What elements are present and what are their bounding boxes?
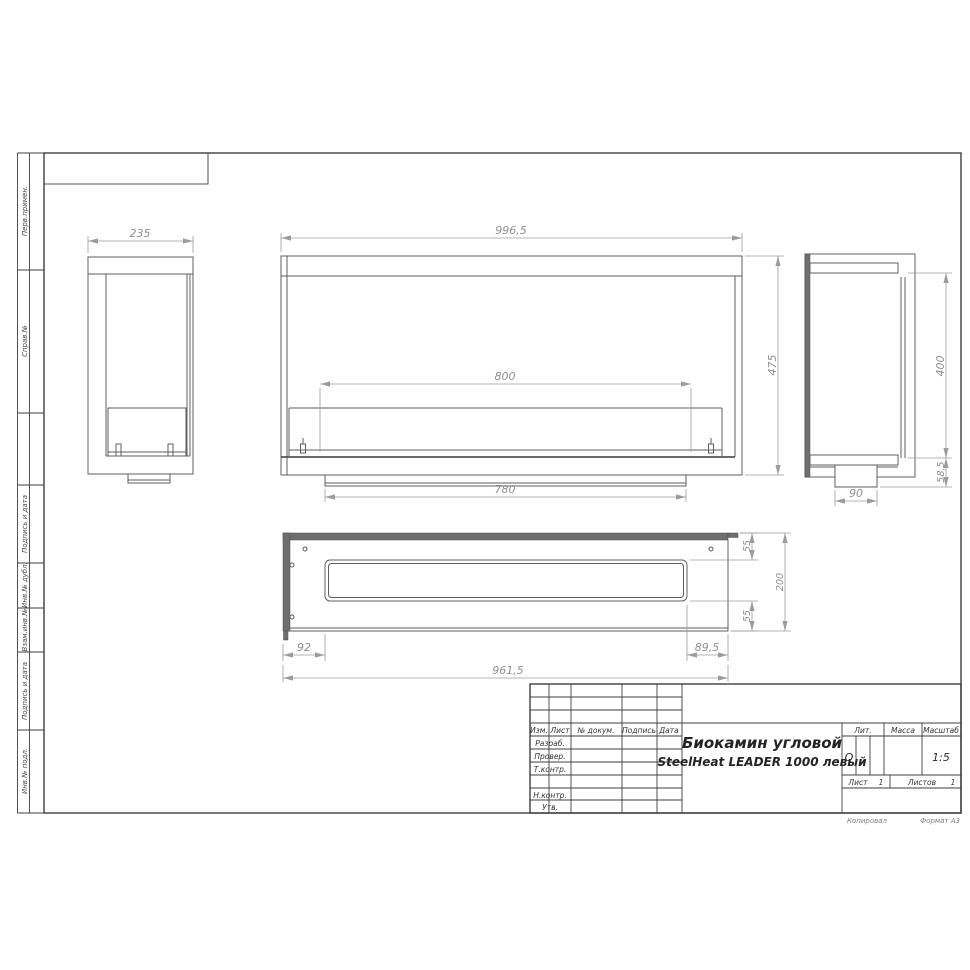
title-block: Изм. Лист № докум. Подпись Дата Разраб. … (530, 684, 961, 813)
view-front: 996,5 800 780 475 (281, 224, 784, 502)
dim-plan-depth: 200 (731, 533, 791, 631)
footer-format: Формат А3 (920, 817, 960, 825)
burner-box-side (108, 408, 186, 456)
col-sign: Подпись (622, 726, 656, 735)
col-list: Лист (549, 726, 570, 735)
role-nkontr: Н.контр. (533, 791, 567, 800)
left-margin-column: Перв.примен. Справ.№ Подпись и дата Инв.… (18, 153, 45, 813)
sheet-footer: Копировал Формат А3 (847, 817, 960, 825)
dim-front-height: 475 (745, 256, 784, 475)
margin-label: Подпись и дата (21, 662, 29, 720)
view-side-right: 400 58,5 90 (805, 254, 952, 506)
dim-plan-left-offset: 92 (283, 634, 325, 661)
margin-label: Справ.№ (21, 325, 29, 357)
drawing-canvas: Перв.примен. Справ.№ Подпись и дата Инв.… (0, 0, 970, 970)
dim-burner-length: 800 (320, 370, 691, 452)
margin-label: Инв.№ дубл. (21, 562, 29, 608)
doc-title-line2: SteelHeat LEADER 1000 левый (657, 755, 867, 769)
burner-slot-outer (325, 560, 687, 601)
dim-text-55-top: 55 (742, 540, 753, 552)
dim-text-58-5: 58,5 (936, 461, 947, 482)
dim-text-800: 800 (495, 370, 516, 383)
dim-side-left-width: 235 (88, 227, 193, 253)
col-date: Дата (658, 726, 679, 735)
drawing-sheet: Перв.примен. Справ.№ Подпись и дата Инв.… (0, 0, 970, 970)
foot-side (128, 474, 170, 483)
dim-text-400: 400 (934, 356, 947, 377)
dim-plan-right-offset: 89,5 (687, 605, 728, 661)
doc-title-line1: Биокамин угловой (682, 734, 843, 752)
margin-label: Инв.№ подл. (21, 748, 29, 794)
col-izm: Изм. (530, 726, 548, 735)
dim-plan-bottom-margin: 55 (690, 601, 758, 631)
dim-text-90: 90 (849, 487, 863, 500)
dim-text-92: 92 (297, 641, 311, 654)
dim-text-200: 200 (775, 573, 786, 591)
margin-label: Подпись и дата (21, 495, 29, 553)
role-prover: Провер. (534, 752, 565, 761)
burner-slot-inner (329, 564, 684, 598)
footer-copied: Копировал (847, 817, 888, 825)
view-side-left: 235 (88, 227, 193, 483)
margin-label: Взам.инв.№ (21, 608, 29, 651)
sheet-number: 1 (879, 778, 884, 787)
lit-value: О (845, 751, 854, 764)
bolt-left (301, 438, 306, 453)
dim-text-89-5: 89,5 (695, 641, 720, 654)
sheets-total: 1 (951, 778, 956, 787)
dim-text-475: 475 (766, 355, 779, 376)
dim-bottom-offset: 58,5 (880, 458, 952, 487)
role-utv: Утв. (542, 803, 558, 812)
tray-bottom (835, 465, 877, 487)
dim-text-235: 235 (130, 227, 151, 240)
mounting-holes (290, 547, 713, 619)
mass-label: Масса (891, 726, 915, 735)
scale-label: Масштаб (923, 726, 959, 735)
glass-edge-band (805, 254, 810, 477)
bolt-right (709, 438, 714, 453)
dim-text-961-5: 961,5 (492, 664, 524, 677)
dim-text-55-bottom: 55 (742, 610, 753, 622)
side-flange-band (283, 533, 290, 631)
dim-text-780: 780 (495, 483, 516, 496)
dim-front-width: 996,5 (281, 224, 742, 252)
margin-label: Перв.примен. (21, 186, 29, 236)
sheets-label: Листов (907, 778, 936, 787)
lit-label: Лит. (853, 726, 871, 735)
role-tkontr: Т.контр. (534, 765, 567, 774)
dim-text-996-5: 996,5 (495, 224, 527, 237)
sheet-label: Лист (847, 778, 868, 787)
scale-value: 1:5 (932, 751, 950, 764)
top-left-stamp-box (44, 153, 208, 184)
col-doc: № докум. (577, 726, 615, 735)
dim-tray-width: 90 (835, 487, 877, 506)
role-razrab: Разраб. (535, 739, 564, 748)
front-flange-band (283, 533, 728, 540)
dim-plan-total-length: 961,5 (283, 664, 728, 682)
view-plan: 92 89,5 961,5 55 200 (283, 533, 791, 682)
